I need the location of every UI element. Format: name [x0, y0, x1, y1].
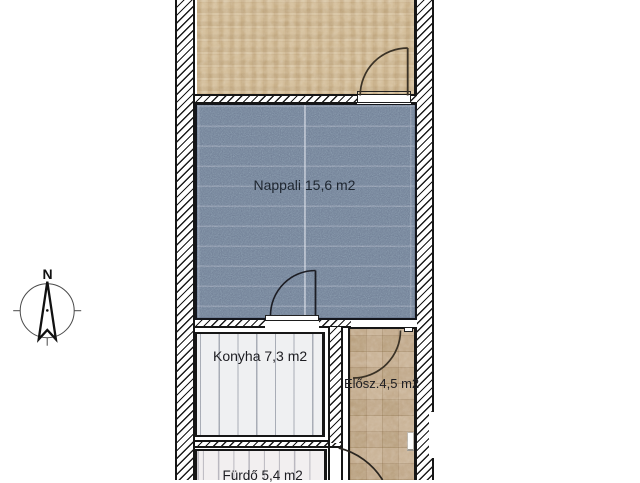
svg-text:N: N	[42, 266, 52, 282]
